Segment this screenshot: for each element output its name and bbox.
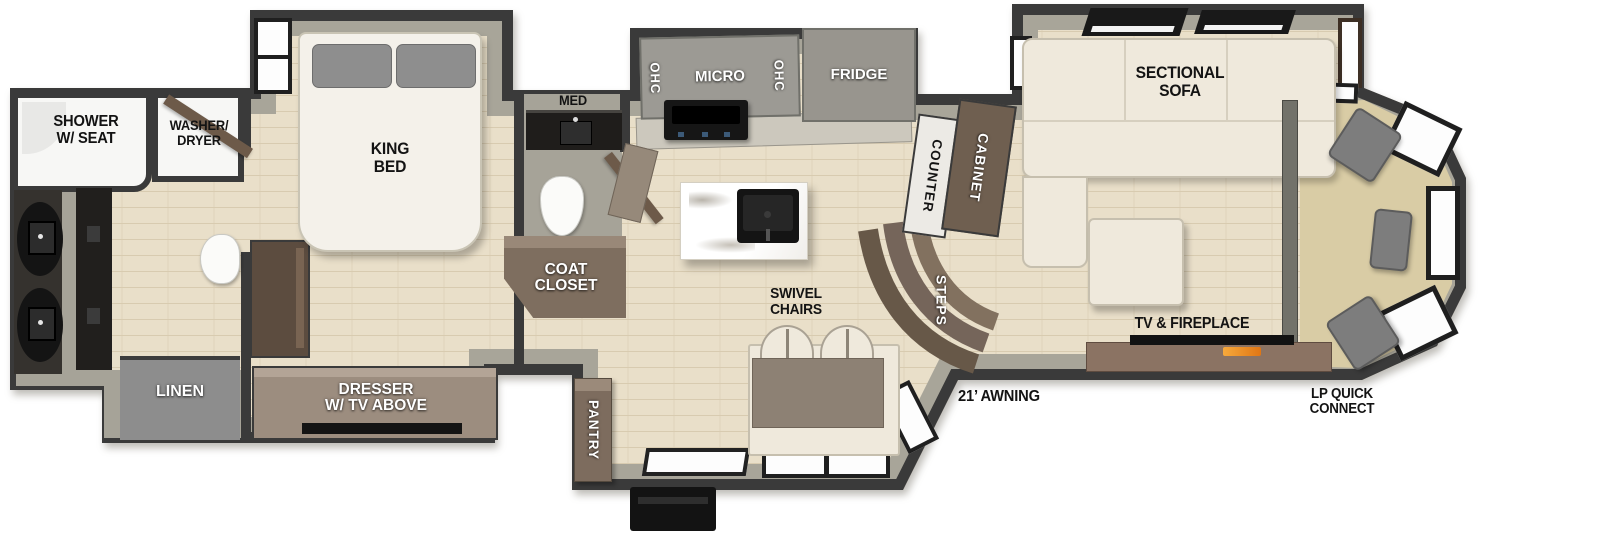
entry-door	[642, 448, 750, 476]
cooktop	[664, 100, 748, 140]
skylight-window	[1194, 10, 1296, 34]
shower-label: SHOWER W/ SEAT	[33, 114, 140, 147]
island-sink	[737, 189, 799, 243]
entry-steps	[630, 487, 716, 531]
lp-quick-connect-label: LP QUICK CONNECT	[1285, 387, 1399, 417]
fridge-label: FRIDGE	[831, 67, 888, 83]
cap-seat-cushion	[1369, 208, 1413, 272]
sectional-sofa-label: SECTIONAL SOFA	[1106, 64, 1253, 99]
king-bed-label: KING BED	[337, 140, 444, 175]
fridge: FRIDGE	[802, 28, 916, 122]
bath-mirror-cabinet	[76, 188, 112, 370]
swivel-chairs-label: SWIVEL CHAIRS	[741, 286, 851, 317]
half-bath-sink	[526, 110, 622, 150]
bath-sink-1	[17, 202, 63, 276]
bedroom-window	[254, 18, 292, 94]
tv-strip	[1130, 335, 1294, 345]
cap-window-right	[1426, 186, 1460, 280]
floorplan-canvas: SHOWER W/ SEAT WASHER/ DRYER LINEN KING …	[0, 0, 1600, 534]
tv-fireplace-label: TV & FIREPLACE	[1100, 316, 1284, 332]
pantry-label: PANTRY	[586, 400, 600, 460]
dinette-table	[752, 358, 884, 428]
sofa-slide-right-window	[1338, 18, 1362, 88]
bath-toilet	[200, 234, 240, 284]
washer-dryer-label: WASHER/ DRYER	[159, 118, 238, 147]
ohc-right-label: OHC	[772, 60, 786, 92]
ottoman	[1088, 218, 1184, 306]
sofa-chaise	[1022, 176, 1088, 268]
tv-fireplace-console	[1086, 342, 1332, 372]
bath-sink-2	[17, 288, 63, 362]
tv-partition-wall	[1282, 100, 1298, 344]
pillow	[312, 44, 392, 88]
bedroom-wardrobe	[250, 240, 310, 358]
pillow	[396, 44, 476, 88]
skylight-window	[1081, 8, 1188, 36]
med-label: MED	[533, 93, 612, 108]
dresser-label: DRESSER W/ TV ABOVE	[268, 382, 484, 414]
kitchen-island	[680, 182, 808, 260]
fireplace-flame	[1223, 347, 1261, 356]
micro-label: MICRO	[695, 69, 745, 86]
steps-label: STEPS	[934, 275, 949, 326]
awning-label: 21’ AWNING	[958, 389, 1087, 406]
linen-label: LINEN	[126, 384, 234, 401]
coat-closet-label: COAT CLOSET	[514, 262, 618, 294]
cabinet-label: CABINET	[967, 133, 991, 204]
steps-area: STEPS	[928, 248, 954, 352]
bedroom-tv	[302, 423, 462, 434]
ohc-left-label: OHC	[648, 62, 662, 94]
pantry: PANTRY	[574, 378, 612, 482]
counter-label: COUNTER	[920, 139, 944, 214]
